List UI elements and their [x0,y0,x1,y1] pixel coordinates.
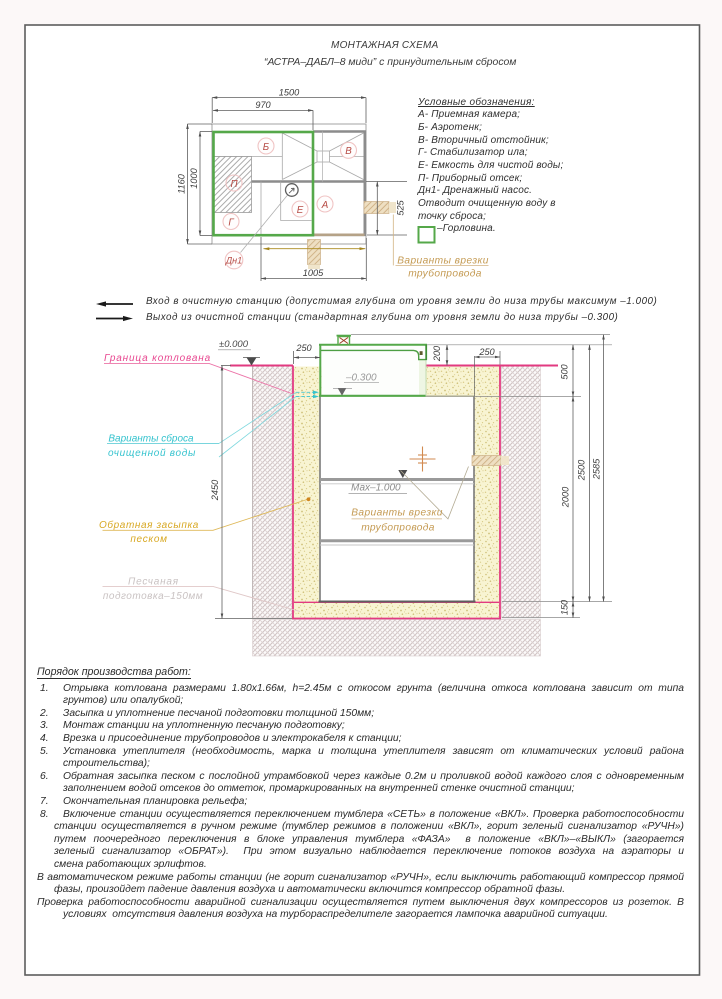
svg-text:250: 250 [295,343,312,353]
svg-text:–0.300: –0.300 [345,373,377,384]
svg-text:трубопровода: трубопровода [408,268,482,280]
svg-text:песком: песком [130,534,167,545]
svg-text:1005: 1005 [303,268,324,278]
svg-text:500: 500 [560,363,570,379]
svg-text:Варианты врезки: Варианты врезки [351,508,443,519]
svg-text:подготовка–150мм: подготовка–150мм [103,591,203,602]
svg-text:Г: Г [228,217,234,228]
svg-text:Обратная засыпка: Обратная засыпка [99,519,199,531]
svg-text:Е: Е [297,205,304,216]
svg-text:В: В [345,146,352,157]
svg-text:А: А [321,200,329,211]
svg-text:Варианты врезки: Варианты врезки [397,256,489,267]
svg-text:П: П [230,179,238,190]
svg-text:2000: 2000 [561,486,571,508]
svg-text:200: 200 [432,345,442,362]
svg-text:250: 250 [478,347,495,357]
svg-text:970: 970 [255,100,271,110]
svg-text:очищенной воды: очищенной воды [108,448,196,459]
svg-text:Мах–1.000: Мах–1.000 [351,483,401,494]
svg-text:525: 525 [396,199,406,215]
svg-text:150: 150 [560,599,570,615]
svg-text:трубопровода: трубопровода [361,522,435,534]
svg-text:Б: Б [263,142,270,153]
svg-text:2500: 2500 [577,459,587,481]
svg-text:1000: 1000 [189,167,199,188]
svg-text:1160: 1160 [177,173,187,194]
svg-text:Дн1: Дн1 [225,256,242,266]
svg-text:Граница котлована: Граница котлована [104,353,211,364]
svg-text:±0.000: ±0.000 [219,339,249,350]
svg-text:1500: 1500 [279,88,300,98]
svg-text:Варианты сброса: Варианты сброса [108,433,194,445]
svg-text:2450: 2450 [210,479,220,501]
svg-text:2585: 2585 [592,458,602,480]
svg-text:Песчаная: Песчаная [128,577,179,588]
